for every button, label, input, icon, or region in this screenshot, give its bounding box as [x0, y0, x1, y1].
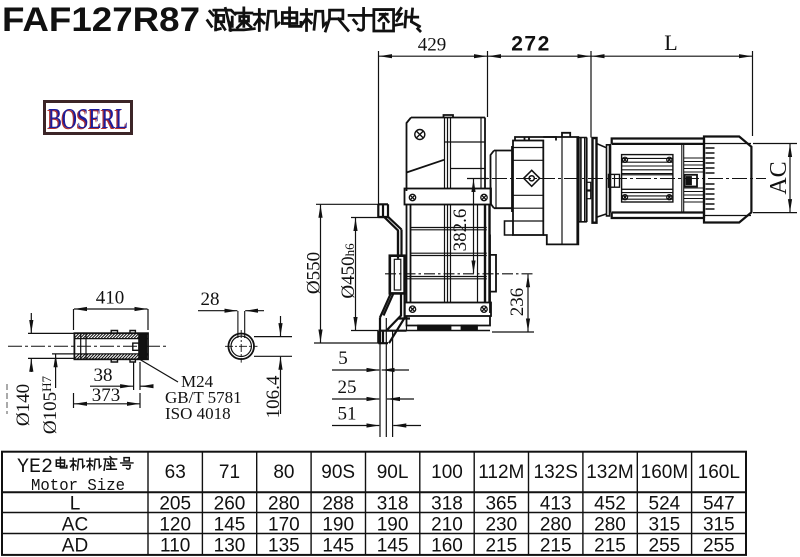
svg-text:145: 145: [377, 536, 409, 557]
svg-text:L: L: [70, 494, 81, 515]
svg-text:230: 230: [485, 515, 517, 536]
svg-text:318: 318: [431, 494, 463, 515]
svg-text:318: 318: [377, 494, 409, 515]
svg-text:547: 547: [703, 494, 735, 515]
svg-text:315: 315: [703, 515, 735, 536]
svg-text:365: 365: [485, 494, 517, 515]
svg-text:63: 63: [165, 462, 186, 483]
svg-text:280: 280: [268, 494, 300, 515]
svg-text:120: 120: [159, 515, 191, 536]
svg-text:429: 429: [418, 35, 447, 56]
svg-text:25: 25: [338, 377, 357, 398]
svg-text:236: 236: [507, 288, 528, 317]
svg-text:215: 215: [485, 536, 517, 557]
svg-text:205: 205: [159, 494, 191, 515]
svg-text:315: 315: [649, 515, 681, 536]
svg-text:132S: 132S: [534, 462, 578, 483]
svg-text:90S: 90S: [321, 462, 355, 483]
svg-text:215: 215: [594, 536, 626, 557]
svg-text:FAF127R87: FAF127R87: [2, 1, 200, 39]
svg-text:130: 130: [214, 536, 246, 557]
svg-text:L: L: [664, 30, 677, 55]
svg-text:210: 210: [431, 515, 463, 536]
svg-text:272: 272: [511, 33, 551, 56]
svg-text:132M: 132M: [586, 462, 634, 483]
svg-text:260: 260: [214, 494, 246, 515]
svg-text:112M: 112M: [478, 462, 524, 483]
svg-text:110: 110: [160, 536, 190, 557]
svg-text:AD: AD: [62, 536, 88, 557]
svg-text:170: 170: [268, 515, 300, 536]
svg-text:28: 28: [201, 289, 220, 310]
svg-text:373: 373: [92, 385, 121, 406]
svg-text:YE2: YE2: [17, 456, 53, 479]
svg-text:145: 145: [214, 515, 246, 536]
svg-text:255: 255: [703, 536, 735, 557]
svg-text:160: 160: [431, 536, 463, 557]
svg-text:280: 280: [594, 515, 626, 536]
svg-text:Ø140: Ø140: [13, 384, 34, 426]
svg-text:BOSERL: BOSERL: [48, 104, 128, 135]
svg-text:80: 80: [273, 462, 294, 483]
svg-text:190: 190: [377, 515, 409, 536]
svg-text:AC: AC: [766, 161, 792, 194]
svg-text:Ø450h6: Ø450h6: [338, 243, 359, 299]
svg-text:145: 145: [322, 536, 354, 557]
svg-text:160L: 160L: [698, 462, 740, 483]
svg-text:38: 38: [94, 365, 113, 386]
svg-text:190: 190: [322, 515, 354, 536]
svg-text:51: 51: [338, 404, 357, 425]
svg-text:288: 288: [322, 494, 354, 515]
svg-text:160M: 160M: [641, 462, 689, 483]
svg-text:410: 410: [96, 288, 125, 309]
svg-text:524: 524: [649, 494, 681, 515]
svg-text:Ø105H7: Ø105H7: [39, 375, 61, 434]
svg-text:5: 5: [338, 348, 348, 369]
svg-text:ISO 4018: ISO 4018: [165, 404, 231, 423]
svg-text:255: 255: [649, 536, 681, 557]
svg-text:Ø550: Ø550: [304, 252, 325, 294]
svg-text:71: 71: [219, 462, 240, 483]
svg-text:215: 215: [540, 536, 572, 557]
svg-text:135: 135: [268, 536, 300, 557]
svg-text:106.4: 106.4: [263, 375, 284, 418]
svg-text:382.6: 382.6: [450, 209, 471, 252]
svg-text:452: 452: [594, 494, 626, 515]
svg-text:413: 413: [540, 494, 572, 515]
svg-text:90L: 90L: [377, 462, 409, 483]
svg-text:AC: AC: [62, 515, 88, 536]
svg-text:280: 280: [540, 515, 572, 536]
svg-text:100: 100: [431, 462, 463, 483]
